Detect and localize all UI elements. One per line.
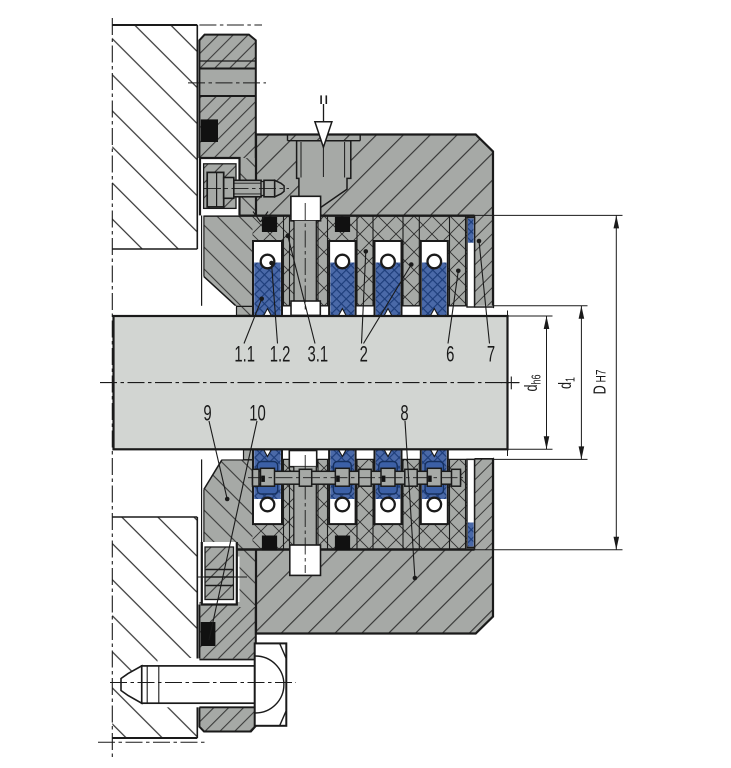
svg-text:7: 7: [487, 342, 495, 367]
svg-text:1.1: 1.1: [234, 342, 255, 367]
svg-text:3.1: 3.1: [307, 342, 328, 367]
svg-text:DH7: DH7: [591, 369, 611, 394]
svg-text:8: 8: [400, 402, 408, 427]
svg-text:2: 2: [360, 342, 368, 367]
svg-text:10: 10: [249, 402, 266, 427]
svg-text:6: 6: [446, 342, 454, 367]
svg-text:1.2: 1.2: [270, 342, 291, 367]
svg-text:9: 9: [203, 402, 211, 427]
